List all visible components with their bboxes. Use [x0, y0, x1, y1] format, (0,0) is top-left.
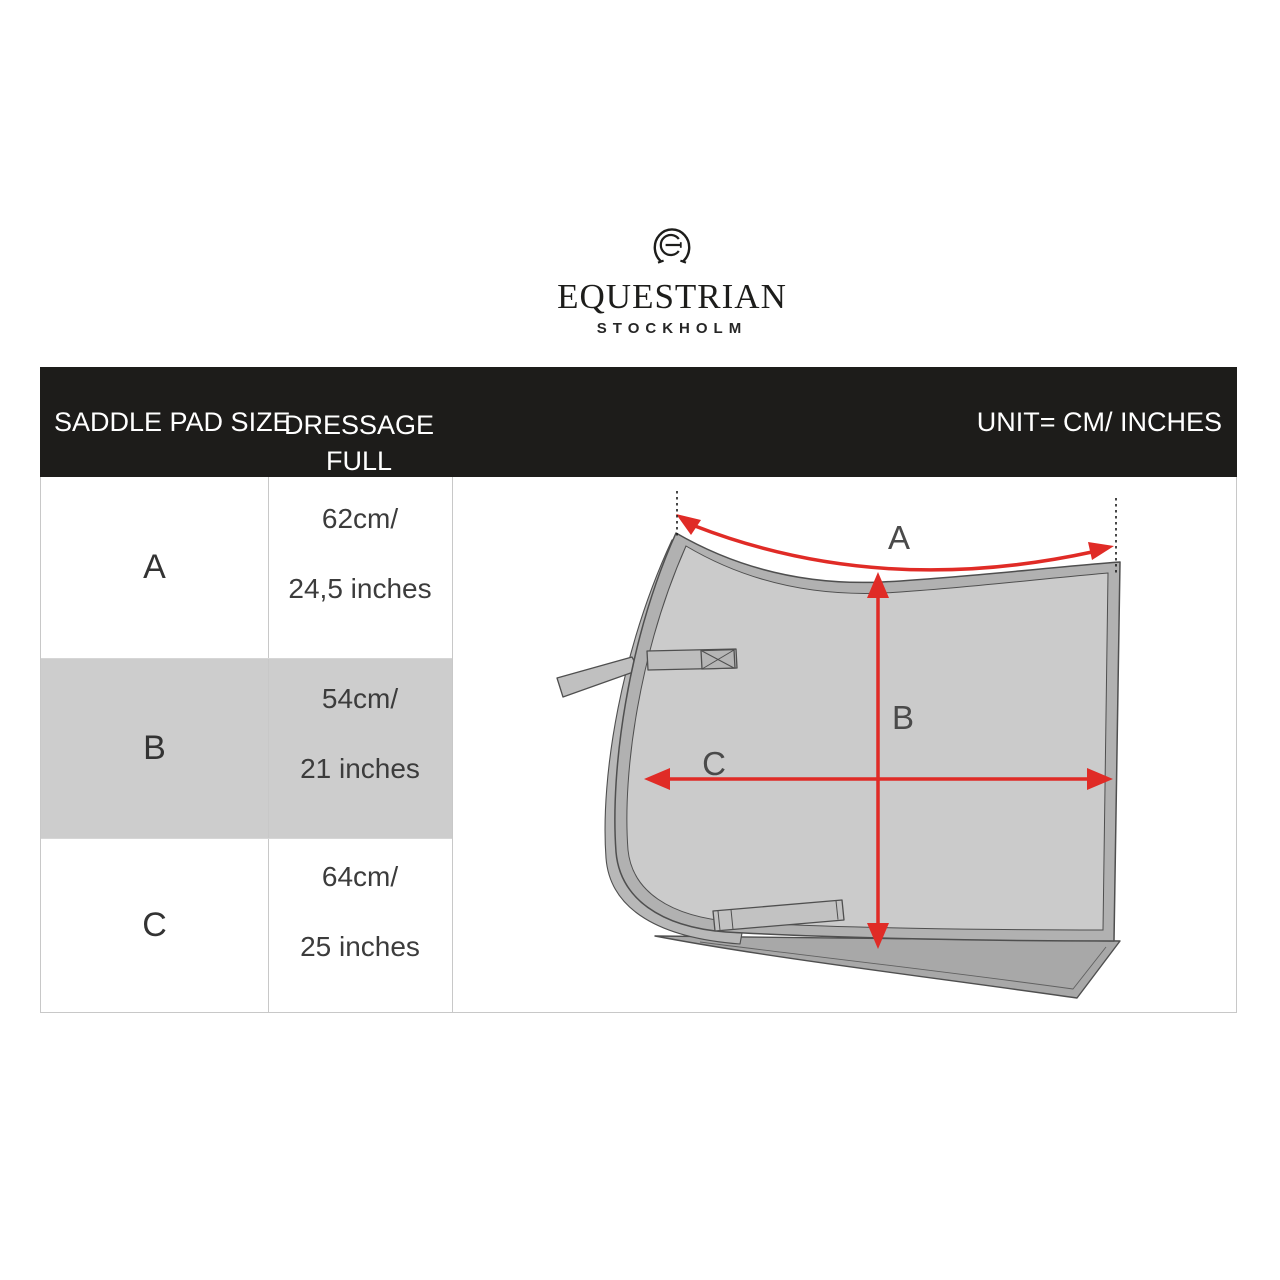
header-saddle-pad-size: SADDLE PAD SIZE: [54, 407, 291, 438]
measurement-a-inches: 24,5 inches: [288, 573, 431, 605]
saddle-pad-diagram: A B C: [452, 478, 1237, 1013]
brand-city: STOCKHOLM: [468, 320, 876, 337]
saddle-pad-underlayer: [655, 936, 1120, 998]
size-letter-b: B: [41, 658, 268, 838]
label-b: B: [892, 699, 914, 736]
header-product-line1: DRESSAGE: [267, 407, 451, 443]
measurement-b-inches: 21 inches: [300, 753, 420, 785]
measurement-c-inches: 25 inches: [300, 931, 420, 963]
measurement-a-cm: 62cm/: [322, 503, 398, 535]
measurement-c: 64cm/ 25 inches: [268, 838, 452, 1013]
measurement-c-cm: 64cm/: [322, 861, 398, 893]
measurement-b: 54cm/ 21 inches: [268, 658, 452, 838]
saddle-pad-body: [615, 533, 1120, 941]
size-letter-a: A: [41, 477, 268, 658]
brand-name: EQUESTRIAN: [468, 277, 876, 317]
label-c: C: [702, 745, 726, 782]
size-letter-c: C: [41, 838, 268, 1013]
header-product-line2: FULL: [267, 443, 451, 479]
header-dressage-full: DRESSAGE FULL: [267, 407, 451, 479]
keeper-strap: [647, 649, 737, 670]
measurement-b-cm: 54cm/: [322, 683, 398, 715]
measurement-a: 62cm/ 24,5 inches: [268, 477, 452, 658]
label-a: A: [888, 519, 910, 556]
horseshoe-monogram-icon: [648, 222, 696, 276]
header-unit: UNIT= CM/ INCHES: [977, 407, 1222, 438]
brand-logo: EQUESTRIAN STOCKHOLM: [468, 222, 876, 337]
size-chart-page: { "brand": { "name": "EQUESTRIAN", "city…: [0, 0, 1280, 1280]
table-header-bar: SADDLE PAD SIZE DRESSAGE FULL UNIT= CM/ …: [40, 367, 1237, 477]
